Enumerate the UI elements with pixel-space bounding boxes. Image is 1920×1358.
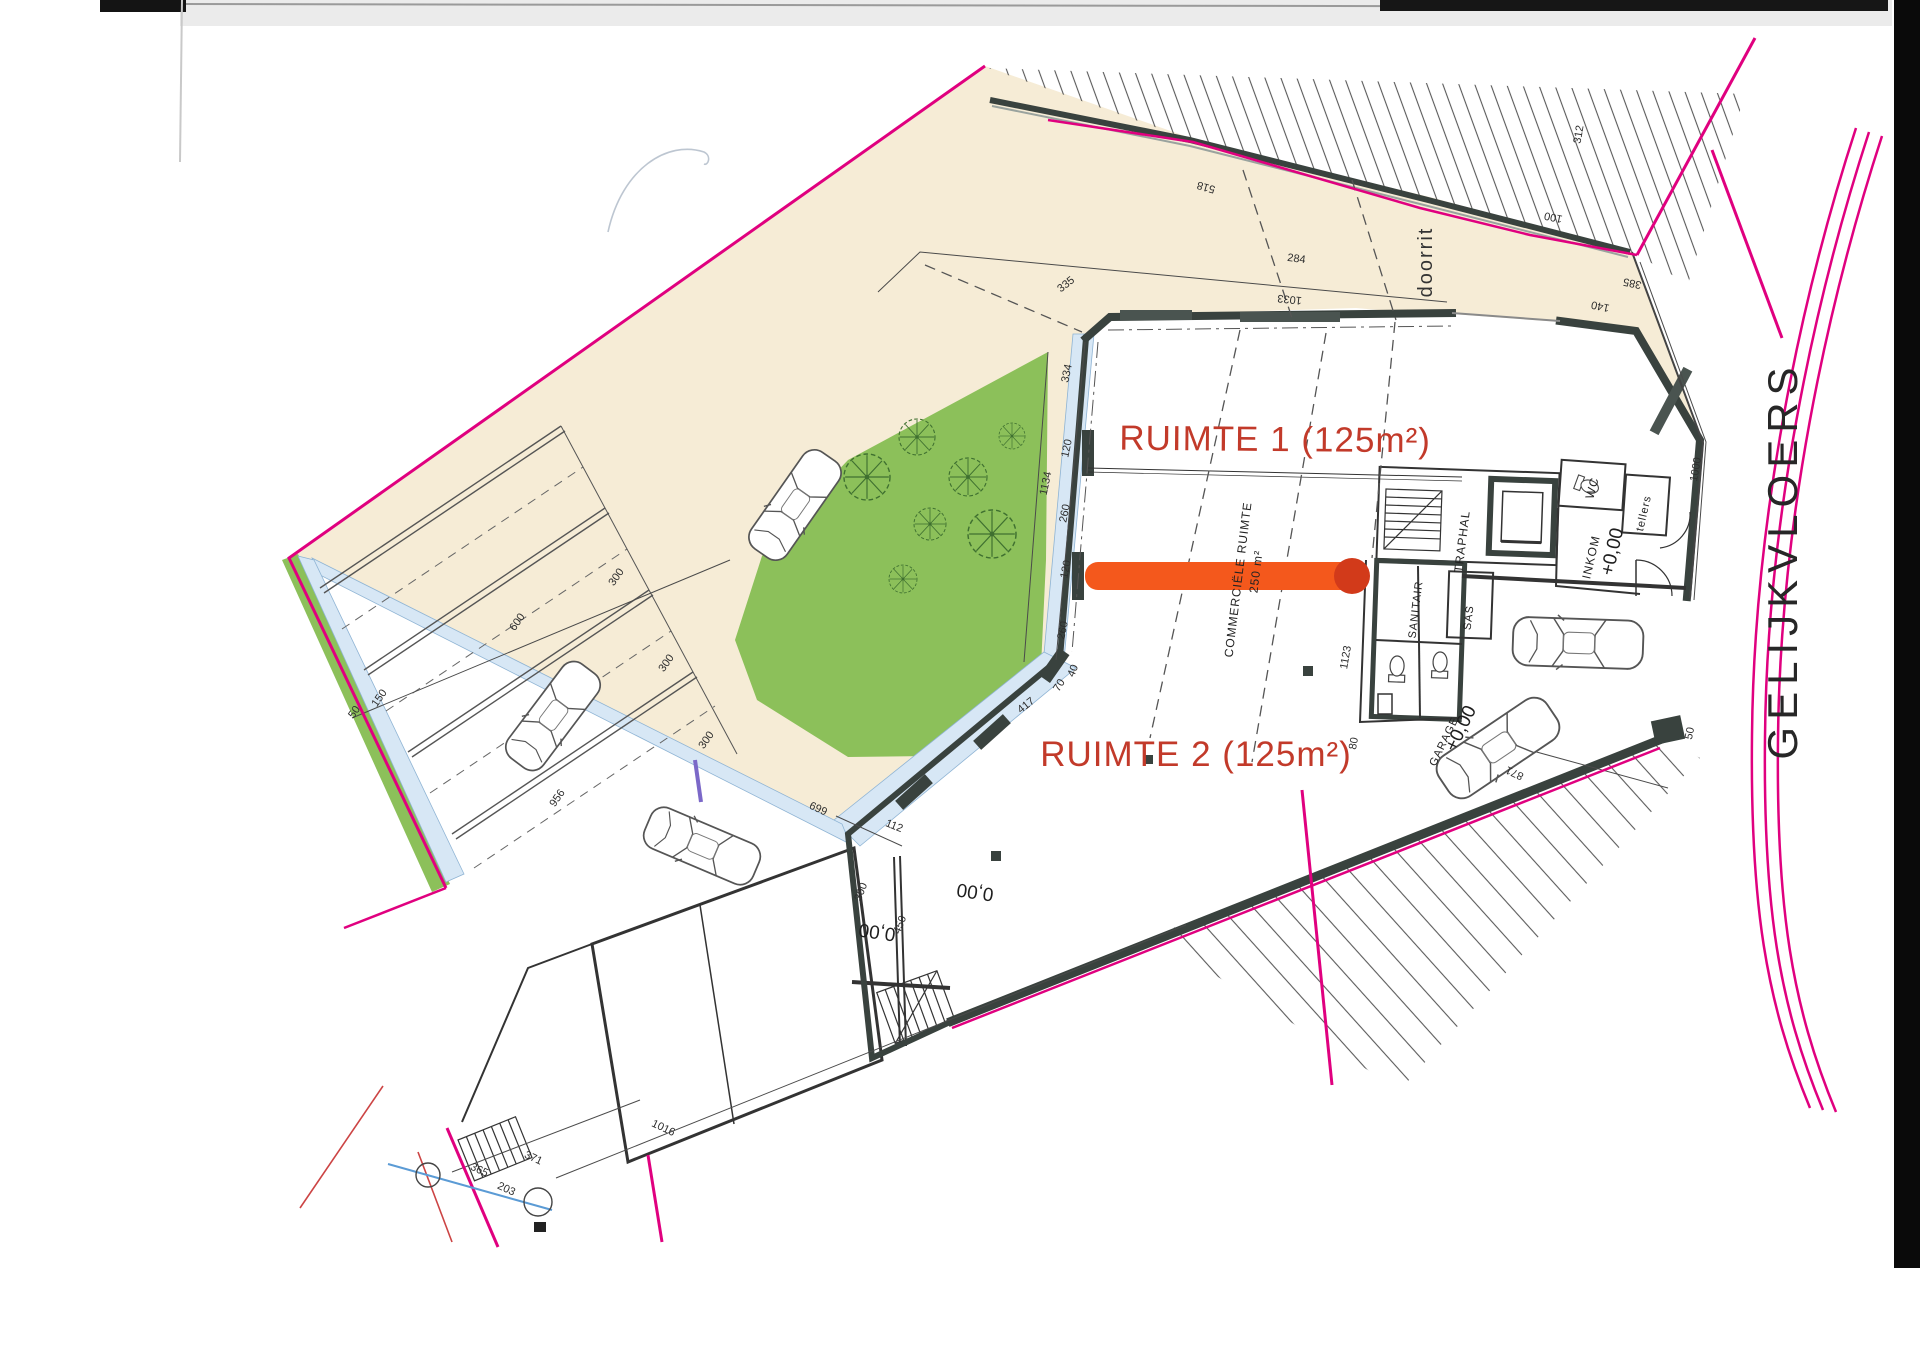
dimension-label: 50	[1683, 726, 1697, 740]
ruimte2-label: RUIMTE 2 (125m²)	[1040, 735, 1352, 774]
floor-title: GELIJKVLOERS	[1759, 360, 1806, 759]
scan-right-band	[1894, 0, 1920, 1268]
car-garage-1	[1512, 613, 1644, 672]
scanned-floor-plan-page: { "plan": { "title": "GELIJKVLOERS", "la…	[0, 0, 1920, 1358]
dimension-label: 80	[1347, 736, 1361, 750]
doorrit-label: doorrit	[1415, 227, 1437, 298]
scan-top-right-bar	[1380, 0, 1888, 11]
highlight-bar	[1085, 558, 1370, 594]
dimension-label: 1033	[1277, 292, 1303, 306]
floor-plan-drawing: RUIMTE 1 (125m²) RUIMTE 2 (125m²) GELIJK…	[0, 0, 1920, 1358]
scan-top-left-bar	[100, 0, 186, 12]
dimension-label: 284	[1286, 252, 1306, 266]
ruimte1-label: RUIMTE 1 (125m²)	[1119, 419, 1431, 461]
